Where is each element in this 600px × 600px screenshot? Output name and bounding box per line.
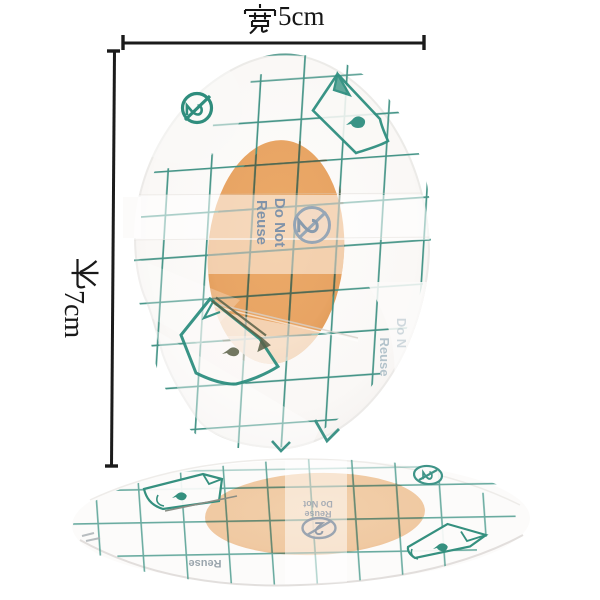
svg-text:Reuse: Reuse [377, 337, 392, 376]
svg-text:Do N: Do N [394, 318, 409, 348]
svg-text:5cm: 5cm [278, 1, 325, 31]
svg-text:Reuse: Reuse [188, 557, 221, 569]
svg-text:7cm: 7cm [58, 290, 89, 338]
svg-text:Do Not: Do Not [303, 499, 333, 509]
svg-text:Reuse: Reuse [253, 200, 270, 245]
svg-text:Do Not: Do Not [271, 198, 288, 247]
